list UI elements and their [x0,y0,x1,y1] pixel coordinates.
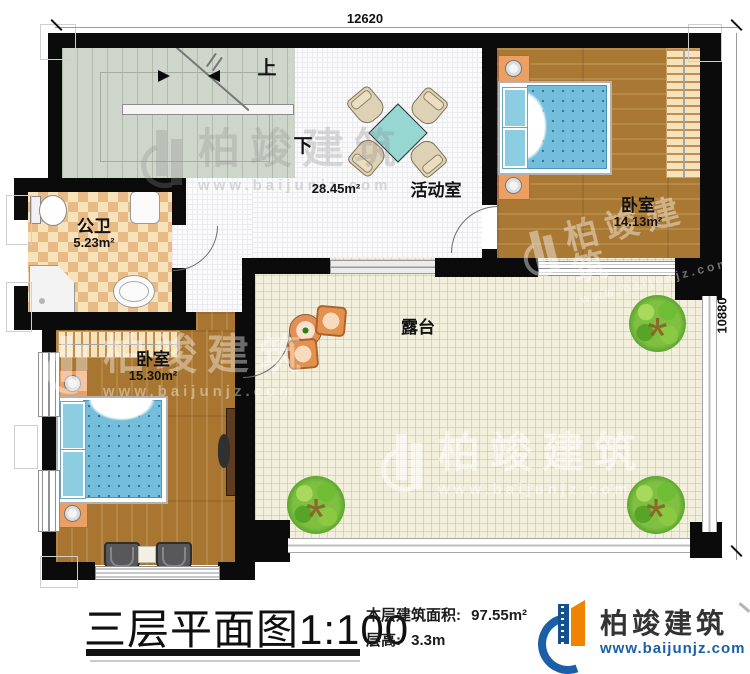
side-table [138,546,156,563]
company-logo: 柏竣建筑 www.baijunjz.com [540,594,750,666]
dimension-tick [730,19,742,31]
bed-sheet-fold [83,398,160,424]
wardrobe-bedroom-top [666,48,702,178]
extension-box [688,24,722,62]
logo-tower-blue-icon [558,604,569,644]
wall-bed1-left [482,33,497,205]
floor-height-value: 3.3m [411,632,445,649]
dimension-right-value: 10880 [715,286,730,346]
bed-pillow [503,128,527,168]
dimension-line-top [55,27,737,28]
logo-accent-tick [739,602,750,613]
drawing-title: 三层平面图1:100 [84,596,409,657]
sliding-door [330,260,437,274]
desk-chair [218,434,230,468]
activity-name-label: 活动室 [400,181,472,200]
bedroom-top-area: 14.13m² [592,215,684,230]
tree-icon [627,476,685,534]
floor-area-value: 97.55m² [471,607,527,624]
activity-area-label: 28.45m² [300,182,372,197]
terrace-stool [315,305,348,338]
floor-height-info: 层高: 3.3m [366,629,445,650]
window-bed2-left [38,352,60,417]
title-underline-thin [90,660,360,662]
nightstand [58,370,88,398]
bathroom-label: 公卫 5.23m² [54,217,134,251]
wall-bath-right [172,268,186,314]
bedroom-bottom-name: 卧室 [108,350,198,369]
nightstand [498,171,530,200]
floor-area-label: 本层建筑面积: [366,607,461,624]
extension-box [6,282,32,332]
wall-bath-bottom [14,312,196,330]
window-bed2-bottom [95,566,220,580]
wall-bed2-bottom [218,562,255,580]
stair-arrow-icon [202,70,220,82]
stair-arrow-icon [158,70,176,82]
tree-icon [629,295,686,352]
title-underline-thick [86,649,360,656]
stair-handrail [122,104,294,115]
extension-box [14,425,38,469]
wall-bed2-left [42,330,56,352]
wall-activity-bottom [242,258,330,274]
wall-bed2-left [42,415,56,470]
floor-height-label: 层高: [366,632,401,649]
floor-plan-canvas: 柏竣建筑 www.baijunjz.com 柏竣建筑 www.baijunjz.… [0,0,750,674]
bathroom-name: 公卫 [54,217,134,236]
window-bed1-bottom [538,261,677,276]
terrace-stool [287,338,320,371]
stairs-up-label: 上 [253,58,281,79]
extension-box [6,195,32,245]
dimension-top-value: 12620 [325,11,405,26]
floor-area-info: 本层建筑面积: 97.55m² [366,604,527,625]
bedroom-top-name: 卧室 [592,196,684,215]
window-bed2-left [38,470,60,532]
bedroom-bottom-area: 15.30m² [108,369,198,384]
wall-left-upper [48,48,62,190]
extension-box [40,24,76,60]
nightstand [498,55,530,83]
bedroom-top-label: 卧室 14.13m² [592,196,684,230]
dimension-line-right [736,33,737,560]
wall-terrace-corner-bl [235,520,290,562]
terrace-railing-bottom [288,538,690,553]
nightstand [58,500,88,528]
logo-company-name: 柏竣建筑 [600,602,728,642]
bathroom-area: 5.23m² [54,236,134,251]
washbasin-oval-icon [113,275,155,308]
extension-box [40,556,78,588]
bed-pillow [61,450,85,498]
wall-right [700,33,722,258]
tree-icon [287,476,345,534]
stair-landing-outline [100,72,270,162]
bed-pillow [503,88,527,128]
logo-tower-orange-icon [571,600,585,646]
terrace-label: 露台 [396,318,440,337]
drawing-title-text: 三层平面图 [84,606,299,653]
wall-top [48,33,722,48]
bedroom-bottom-label: 卧室 15.30m² [108,350,198,384]
bed-pillow [61,402,85,450]
logo-website: www.baijunjz.com [600,640,745,657]
stairs-down-label: 下 [289,136,317,157]
